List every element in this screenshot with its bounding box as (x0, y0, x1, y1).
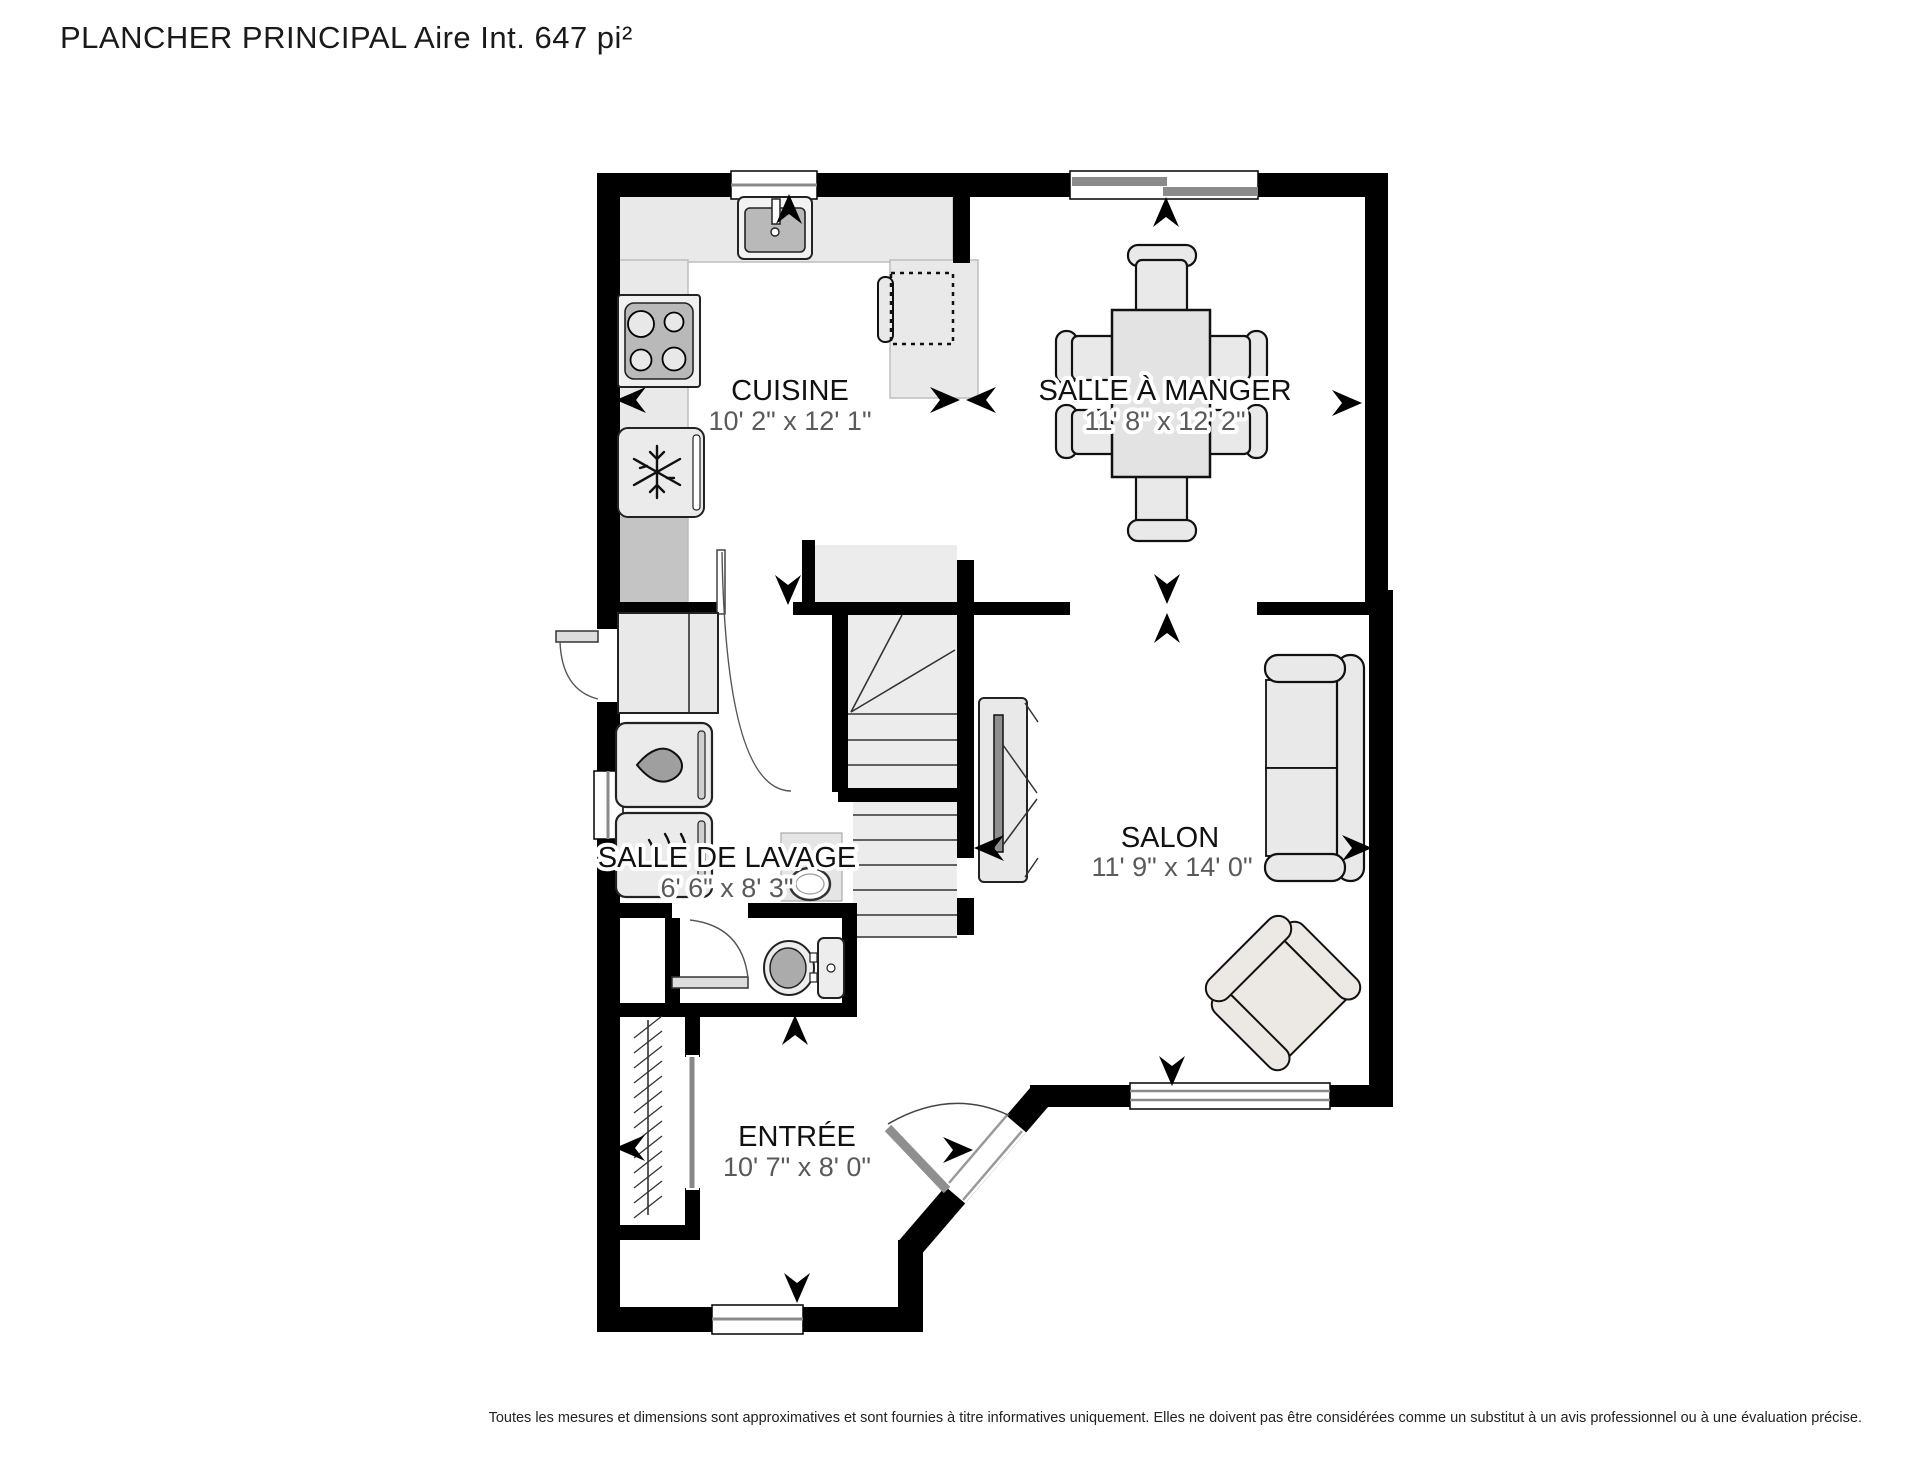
room-dim-salon: 11' 9" x 14' 0" (1091, 852, 1252, 882)
closet-sliding-door (686, 1055, 699, 1190)
washer-icon (616, 723, 712, 807)
stairs (848, 613, 957, 938)
room-dim-entree: 10' 7" x 8' 0" (723, 1152, 871, 1182)
room-label-salle-de-lavage: SALLE DE LAVAGE (598, 842, 856, 874)
sofa (1265, 655, 1364, 881)
toilet-icon (764, 938, 844, 998)
dining-chair (1128, 245, 1196, 318)
side-door (556, 629, 623, 702)
window-salon-bottom (1130, 1083, 1330, 1109)
room-label-entree: ENTRÉE (738, 1120, 856, 1153)
room-label-cuisine: CUISINE (731, 375, 849, 407)
stair-landing (815, 545, 957, 605)
room-label-salon: SALON (1121, 822, 1219, 854)
window-dining (1070, 171, 1258, 199)
refrigerator-icon (618, 428, 704, 517)
stove-icon (618, 295, 700, 387)
window-kitchen (731, 171, 817, 199)
window-entree-bottom (712, 1305, 803, 1334)
room-dim-salle-a-manger: 11' 8" x 12' 2" (1084, 406, 1245, 436)
room-label-salle-a-manger: SALLE À MANGER (1038, 374, 1291, 407)
floor-plan-page: { "title": "PLANCHER PRINCIPAL Aire Int.… (0, 0, 1920, 1483)
floor-plan: CUISINE 10' 2" x 12' 1" SALLE À MANGER 1… (0, 0, 1920, 1483)
dining-chair (1128, 468, 1196, 541)
laundry-cabinet (618, 613, 718, 713)
disclaimer-text: Toutes les mesures et dimensions sont ap… (0, 1410, 1862, 1426)
kitchen-sink-icon (738, 197, 812, 259)
room-dim-salle-de-lavage: 6' 6" x 8' 3" (660, 873, 793, 903)
room-dim-cuisine: 10' 2" x 12' 1" (708, 406, 871, 436)
